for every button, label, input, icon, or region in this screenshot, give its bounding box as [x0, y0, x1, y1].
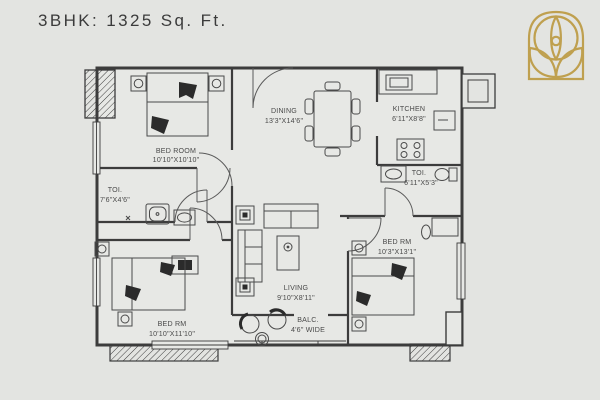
floor-plan-drawing: BED ROOM 10'10"X10'10" DINING 13'3"X14'6… [0, 0, 600, 400]
label-bedroom-bottom-left: BED RM [158, 320, 187, 328]
label-bedroom-bottom-left-dims: 10'10"X11'10" [149, 330, 195, 338]
label-kitchen-dims: 6'11"X8'8" [392, 115, 426, 123]
shaft-hatched [85, 70, 115, 118]
label-balcony-dims: 4'6" WIDE [291, 326, 325, 334]
utility-duct [462, 74, 495, 108]
label-kitchen: KITCHEN [393, 105, 426, 113]
label-bedroom-right: BED RM [383, 238, 412, 246]
label-balcony: BALC. [297, 316, 319, 324]
label-dining-dims: 13'3"X14'6" [265, 117, 304, 125]
label-toilet-right-dims: 6'11"X5'3" [404, 179, 438, 187]
label-bedroom-right-dims: 10'3"X13'1" [378, 248, 417, 256]
label-toilet-right: TOI. [412, 169, 426, 177]
label-living-dims: 9'10"X8'11" [277, 294, 315, 302]
label-bedroom-top-left: BED ROOM [156, 147, 196, 155]
label-living: LIVING [284, 284, 308, 292]
label-toilet-left-dims: 7'6"X4'6" [100, 196, 130, 204]
wardrobe-bottom-right-hatched [410, 344, 450, 361]
label-bedroom-top-left-dims: 10'10"X10'10" [153, 156, 200, 164]
label-toilet-left: TOI. [108, 186, 122, 194]
floorplan-page: 3BHK: 1325 Sq. Ft. [0, 0, 600, 400]
label-dining: DINING [271, 107, 297, 115]
dresser-unit [446, 312, 462, 345]
